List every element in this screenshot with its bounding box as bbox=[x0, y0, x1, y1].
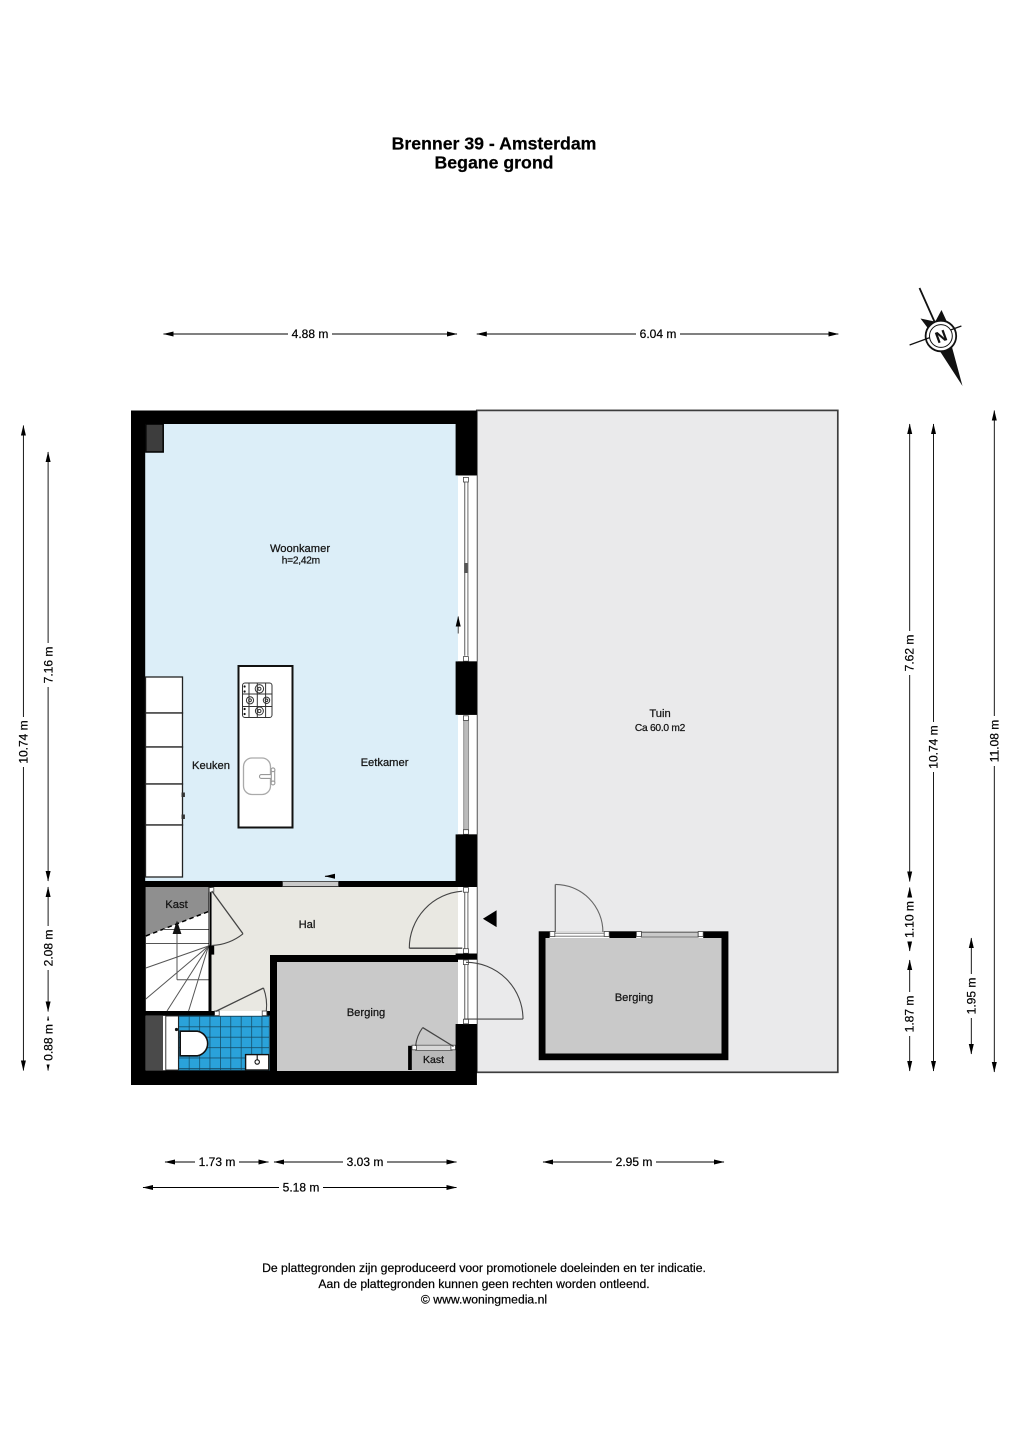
svg-text:De plattegronden zijn geproduc: De plattegronden zijn geproduceerd voor … bbox=[262, 1261, 706, 1275]
svg-text:2.08 m: 2.08 m bbox=[41, 930, 55, 967]
svg-text:4.88 m: 4.88 m bbox=[292, 327, 329, 341]
svg-text:Berging: Berging bbox=[347, 1007, 386, 1019]
svg-text:6.04 m: 6.04 m bbox=[640, 327, 677, 341]
svg-text:1.95 m: 1.95 m bbox=[964, 978, 978, 1015]
svg-text:Aan de plattegronden kunnen ge: Aan de plattegronden kunnen geen rechten… bbox=[318, 1277, 649, 1291]
svg-text:© www.woningmedia.nl: © www.woningmedia.nl bbox=[421, 1293, 547, 1307]
svg-text:Eetkamer: Eetkamer bbox=[361, 757, 409, 769]
svg-text:11.08 m: 11.08 m bbox=[987, 720, 1001, 762]
svg-text:1.10 m: 1.10 m bbox=[903, 901, 917, 938]
svg-text:Woonkamer: Woonkamer bbox=[270, 543, 330, 555]
svg-text:7.62 m: 7.62 m bbox=[903, 635, 917, 672]
svg-text:Ca 60.0 m2: Ca 60.0 m2 bbox=[635, 723, 686, 734]
svg-text:Kast: Kast bbox=[165, 899, 188, 911]
svg-text:1.87 m: 1.87 m bbox=[903, 996, 917, 1033]
svg-text:2.95 m: 2.95 m bbox=[616, 1155, 653, 1169]
svg-text:Tuin: Tuin bbox=[649, 708, 670, 720]
svg-text:Begane grond: Begane grond bbox=[435, 153, 554, 173]
svg-text:3.03 m: 3.03 m bbox=[347, 1155, 384, 1169]
svg-text:5.18 m: 5.18 m bbox=[283, 1181, 320, 1195]
svg-text:Hal: Hal bbox=[299, 919, 316, 931]
svg-text:0.88 m: 0.88 m bbox=[41, 1024, 55, 1061]
svg-text:10.74 m: 10.74 m bbox=[927, 725, 941, 768]
svg-text:10.74 m: 10.74 m bbox=[16, 720, 30, 763]
svg-text:Brenner 39 - Amsterdam: Brenner 39 - Amsterdam bbox=[392, 134, 597, 154]
svg-text:h=2,42m: h=2,42m bbox=[282, 556, 320, 567]
svg-text:7.16 m: 7.16 m bbox=[41, 647, 55, 684]
svg-text:Keuken: Keuken bbox=[192, 760, 230, 772]
svg-text:1.73 m: 1.73 m bbox=[199, 1155, 236, 1169]
svg-text:Kast: Kast bbox=[423, 1054, 444, 1066]
svg-text:Berging: Berging bbox=[615, 992, 654, 1004]
